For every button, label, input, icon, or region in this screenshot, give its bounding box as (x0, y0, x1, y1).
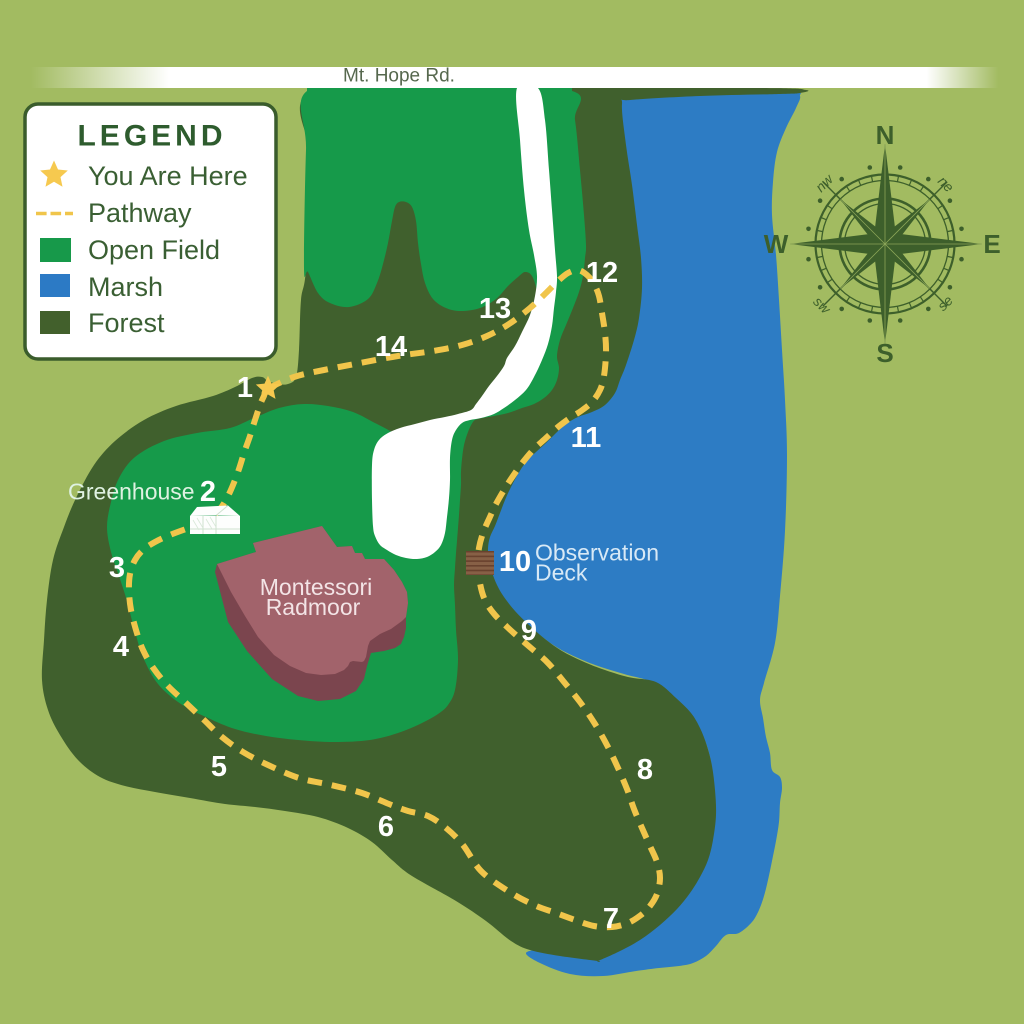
svg-text:2: 2 (200, 476, 216, 508)
svg-text:N: N (876, 120, 895, 150)
svg-text:5: 5 (211, 751, 227, 783)
svg-text:S: S (876, 338, 893, 368)
svg-text:6: 6 (378, 811, 394, 843)
svg-text:4: 4 (113, 631, 129, 663)
svg-text:3: 3 (109, 552, 125, 584)
svg-text:Greenhouse: Greenhouse (68, 479, 195, 505)
svg-text:Forest: Forest (88, 308, 165, 338)
svg-text:Radmoor: Radmoor (266, 594, 361, 620)
svg-text:LEGEND: LEGEND (77, 120, 226, 153)
svg-text:14: 14 (375, 331, 407, 363)
svg-text:W: W (764, 229, 789, 259)
svg-text:7: 7 (603, 903, 619, 935)
svg-text:11: 11 (571, 422, 602, 454)
svg-text:You Are Here: You Are Here (88, 161, 248, 191)
svg-text:Open Field: Open Field (88, 235, 220, 265)
svg-text:Marsh: Marsh (88, 272, 163, 302)
svg-text:12: 12 (586, 257, 618, 289)
svg-text:8: 8 (637, 754, 653, 786)
svg-text:Mt. Hope Rd.: Mt. Hope Rd. (343, 66, 455, 87)
svg-text:10: 10 (499, 546, 531, 578)
svg-text:1: 1 (237, 372, 253, 404)
svg-text:Deck: Deck (535, 560, 588, 586)
svg-text:13: 13 (479, 293, 511, 325)
svg-text:Pathway: Pathway (88, 198, 192, 228)
svg-text:9: 9 (521, 615, 537, 647)
svg-text:E: E (983, 229, 1000, 259)
